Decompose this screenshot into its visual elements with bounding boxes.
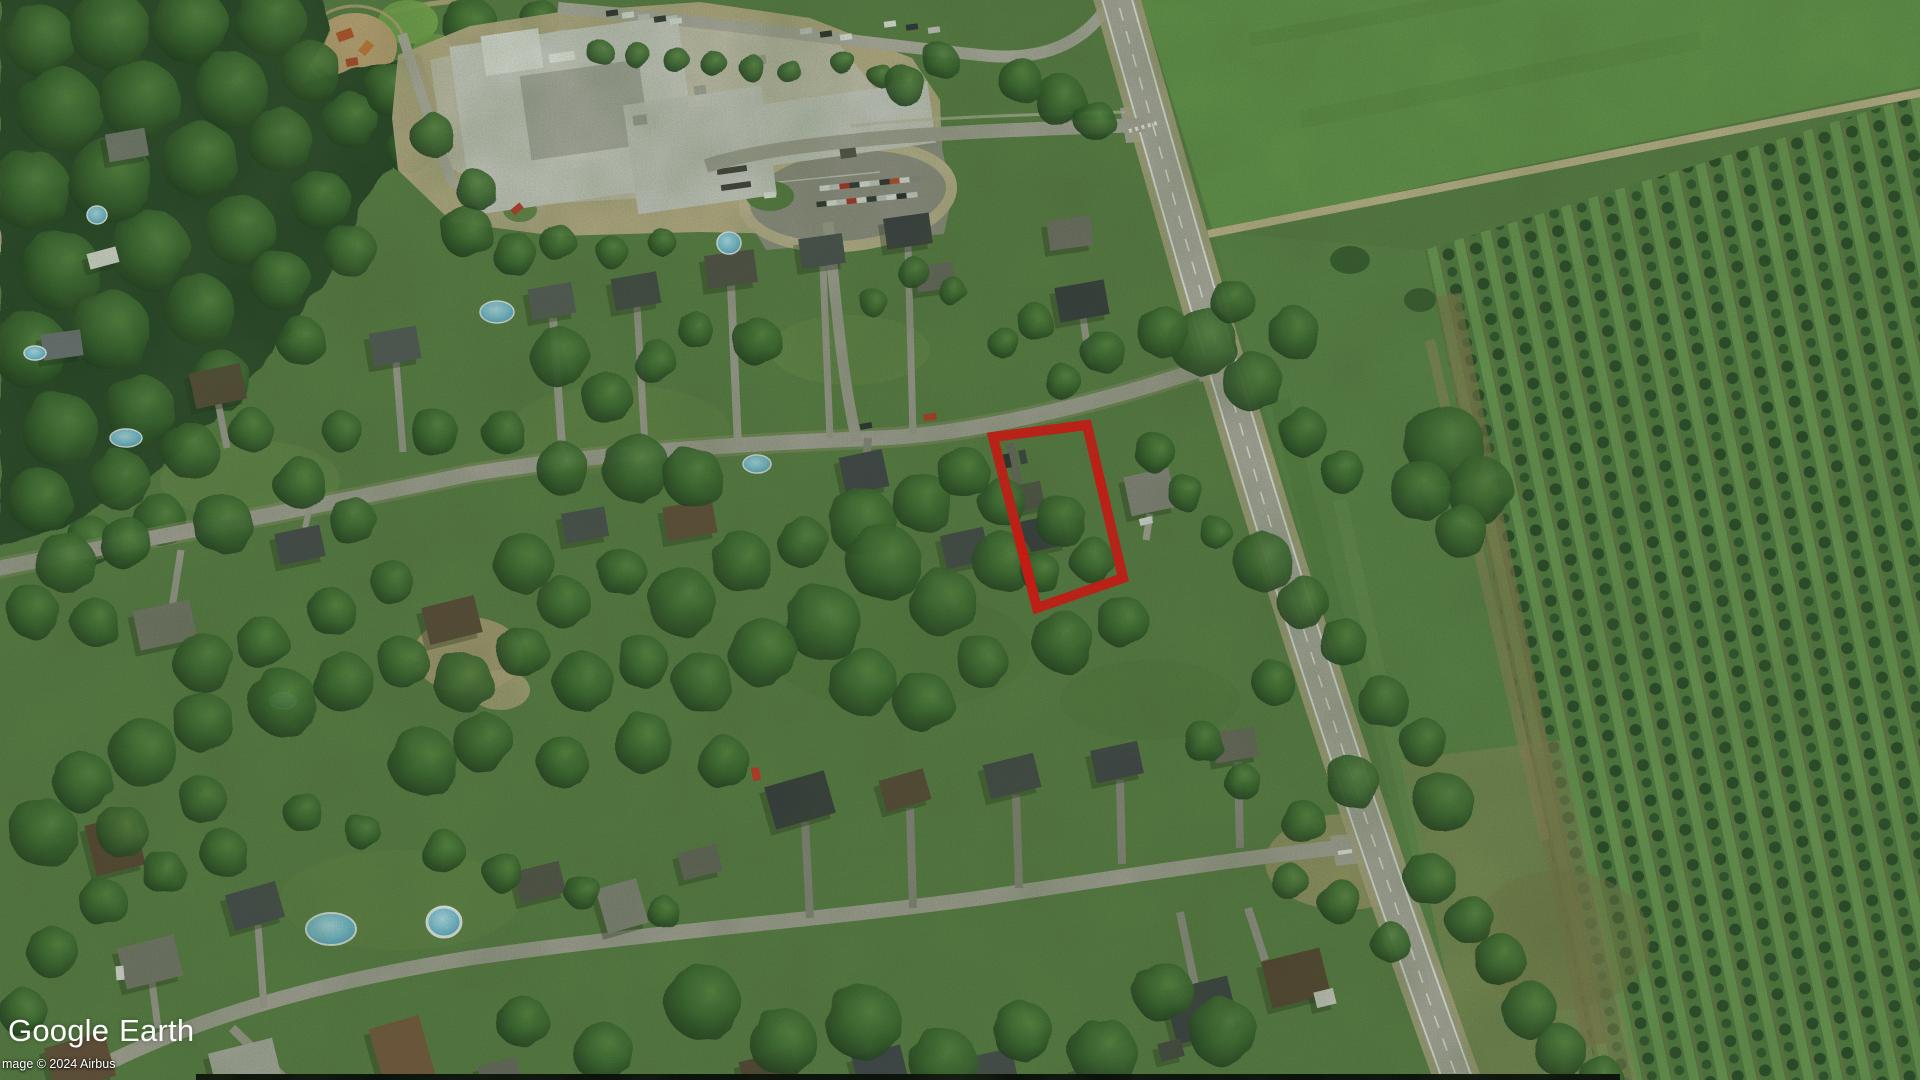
google-earth-logo: GoogleEarth [8, 1014, 194, 1048]
satellite-viewport[interactable]: GoogleEarth mage © 2024 Airbus [0, 0, 1920, 1080]
google-earth-logo-earth: Earth [119, 1013, 194, 1048]
satellite-imagery [0, 0, 1920, 1080]
photo-grain-overlay [0, 0, 1920, 1080]
imagery-attribution: mage © 2024 Airbus [2, 1057, 115, 1071]
google-earth-logo-google: Google [8, 1013, 109, 1048]
